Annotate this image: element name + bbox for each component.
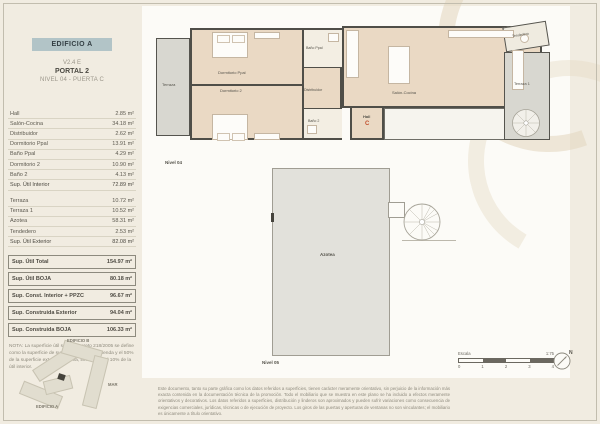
wardrobe-icon xyxy=(254,32,280,39)
pillow-icon xyxy=(232,35,245,43)
summary-value: 154.97 m² xyxy=(107,259,132,265)
summary-box-util-boja: Sup. Útil BOJA80.18 m² xyxy=(8,272,136,286)
area-value: 2.53 m² xyxy=(115,229,134,235)
floor-plan-nivel04: Terraza Dormitorio Ppal Dormito xyxy=(150,24,552,144)
area-value: 34.18 m² xyxy=(112,121,134,127)
nivel05-label: Nivel 05 xyxy=(262,360,279,365)
room-label-azotea: Azotea xyxy=(320,252,335,257)
site-plan: EDIFICIO B MAR EDIFICIO A xyxy=(12,336,130,414)
summary-box-const-interior: Sup. Const. Interior + PPZC96.67 m² xyxy=(8,289,136,303)
room-label-salon-cocina: Salón-Cocina xyxy=(392,90,416,95)
room-label-terraza-1: Terraza 1 xyxy=(514,82,530,86)
wardrobe-icon xyxy=(254,133,280,140)
area-table: Hall2.85 m² Salón-Cocina34.18 m² Distrib… xyxy=(8,109,136,247)
room-label-hall: Hall xyxy=(363,114,370,119)
area-label: Sup. Útil Interior xyxy=(10,182,49,188)
area-value: 4.13 m² xyxy=(115,172,134,178)
scale-label: Escala xyxy=(458,351,471,356)
area-value: 58.31 m² xyxy=(112,218,134,224)
interior-wall xyxy=(302,30,304,138)
area-label: Dormitorio Ppal xyxy=(10,141,48,147)
shower-icon xyxy=(307,125,317,134)
area-row: Azotea58.31 m² xyxy=(8,217,136,227)
area-label: Sup. Útil Exterior xyxy=(10,239,51,245)
area-label: Baño 2 xyxy=(10,172,27,178)
room-label-bano-2: Baño 2 xyxy=(308,119,319,123)
summary-label: Sup. Construida Exterior xyxy=(12,310,77,316)
area-value: 10.52 m² xyxy=(112,208,134,214)
summary-label: Sup. Útil Total xyxy=(12,259,49,265)
svg-text:N: N xyxy=(569,350,573,356)
area-value: 72.89 m² xyxy=(112,182,134,188)
area-value: 2.85 m² xyxy=(115,111,134,117)
summary-box-construida-boja: Sup. Construida BOJA106.33 m² xyxy=(8,323,136,337)
room-bano-2 xyxy=(304,108,342,138)
area-row: Distribuidor2.62 m² xyxy=(8,129,136,139)
roof-access-marker xyxy=(271,213,274,222)
bed-icon xyxy=(212,114,248,140)
pillow-icon xyxy=(217,133,230,141)
room-label-bano-ppal: Baño Ppal xyxy=(306,46,323,50)
area-row: Baño 24.13 m² xyxy=(8,170,136,180)
summary-box-util-total: Sup. Útil Total154.97 m² xyxy=(8,255,136,269)
portal-label: PORTAL 2 xyxy=(8,68,136,75)
area-value: 2.62 m² xyxy=(115,131,134,137)
area-value: 10.72 m² xyxy=(112,198,134,204)
room-label-terraza: Terraza xyxy=(162,82,175,87)
plan-sheet: EDIFICIO A V2.4 E PORTAL 2 NIVEL 04 - PU… xyxy=(0,0,600,424)
interior-wall xyxy=(192,84,302,86)
kitchen-island-icon xyxy=(388,46,410,84)
azotea-roof-plan xyxy=(272,168,390,356)
spiral-stair-icon xyxy=(511,108,541,138)
area-row: Dormitorio Ppal13.91 m² xyxy=(8,140,136,150)
area-row-exterior-total: Sup. Útil Exterior82.08 m² xyxy=(8,237,136,247)
scale-bar: Escala 1:75 0 1 2 3 4 xyxy=(458,351,554,369)
room-label-dormitorio-2: Dormitorio 2 xyxy=(220,88,242,93)
summary-value: 106.33 m² xyxy=(107,327,132,333)
pillow-icon xyxy=(217,35,230,43)
north-compass-icon: N xyxy=(551,348,575,372)
area-row: Salón-Cocina34.18 m² xyxy=(8,119,136,129)
door-letter: C xyxy=(365,121,369,127)
area-label: Azotea xyxy=(10,218,27,224)
area-row-interior-total: Sup. Útil Interior72.89 m² xyxy=(8,180,136,190)
summary-label: Sup. Construida BOJA xyxy=(12,327,71,333)
area-row: Tendedero2.53 m² xyxy=(8,227,136,237)
kitchen-cabinets-icon xyxy=(346,30,359,78)
room-terraza xyxy=(156,38,190,136)
area-label: Tendedero xyxy=(10,229,36,235)
room-label-dormitorio-ppal: Dormitorio Ppal xyxy=(218,70,246,75)
scale-segments xyxy=(458,358,554,363)
summary-box-construida-exterior: Sup. Construida Exterior94.04 m² xyxy=(8,306,136,320)
site-label-mar: MAR xyxy=(108,382,118,387)
area-row: Dormitorio 210.90 m² xyxy=(8,160,136,170)
summary-value: 96.67 m² xyxy=(110,293,132,299)
kitchen-counter-icon xyxy=(448,30,514,38)
scale-tick: 3 xyxy=(528,364,530,369)
area-row: Hall2.85 m² xyxy=(8,109,136,119)
version-label: V2.4 E xyxy=(8,60,136,66)
area-label: Dormitorio 2 xyxy=(10,162,40,168)
level-door-label: NIVEL 04 - PUERTA C xyxy=(8,77,136,83)
scale-ticks: 0 1 2 3 4 xyxy=(458,364,554,369)
area-label: Hall xyxy=(10,111,19,117)
summary-boxes: Sup. Útil Total154.97 m² Sup. Útil BOJA8… xyxy=(8,255,136,337)
summary-value: 94.04 m² xyxy=(110,310,132,316)
site-label-edificio-a: EDIFICIO A xyxy=(36,404,58,409)
pillow-icon xyxy=(232,133,245,141)
disclaimer-text: Este documento, tanto su parte gráfica c… xyxy=(158,386,450,417)
nivel04-label: Nivel 04 xyxy=(165,160,182,165)
scale-tick: 2 xyxy=(505,364,507,369)
area-label: Baño Ppal xyxy=(10,151,35,157)
area-label: Terraza xyxy=(10,198,28,204)
room-hall: Hall C xyxy=(350,108,384,140)
spiral-stair-icon xyxy=(402,202,442,242)
area-row: Baño Ppal4.29 m² xyxy=(8,150,136,160)
area-value: 4.29 m² xyxy=(115,151,134,157)
building-badge: EDIFICIO A xyxy=(32,38,112,51)
summary-value: 80.18 m² xyxy=(110,276,132,282)
scale-tick: 1 xyxy=(481,364,483,369)
area-value: 82.08 m² xyxy=(112,239,134,245)
area-label: Terraza 1 xyxy=(10,208,33,214)
bedroom-wing xyxy=(190,28,342,140)
bed-icon xyxy=(212,32,248,58)
area-label: Salón-Cocina xyxy=(10,121,43,127)
area-label: Distribuidor xyxy=(10,131,38,137)
shower-icon xyxy=(328,33,339,42)
info-sidebar: EDIFICIO A V2.4 E PORTAL 2 NIVEL 04 - PU… xyxy=(8,38,136,372)
area-row: Terraza10.72 m² xyxy=(8,197,136,207)
site-building-shape xyxy=(82,355,109,409)
area-value: 10.90 m² xyxy=(112,162,134,168)
site-label-edificio-b: EDIFICIO B xyxy=(67,338,89,343)
area-value: 13.91 m² xyxy=(112,141,134,147)
room-label-distribuidor: Distribuidor xyxy=(304,88,322,92)
area-row: Terraza 110.52 m² xyxy=(8,207,136,217)
scale-tick: 0 xyxy=(458,364,460,369)
summary-label: Sup. Const. Interior + PPZC xyxy=(12,293,84,299)
summary-label: Sup. Útil BOJA xyxy=(12,276,51,282)
